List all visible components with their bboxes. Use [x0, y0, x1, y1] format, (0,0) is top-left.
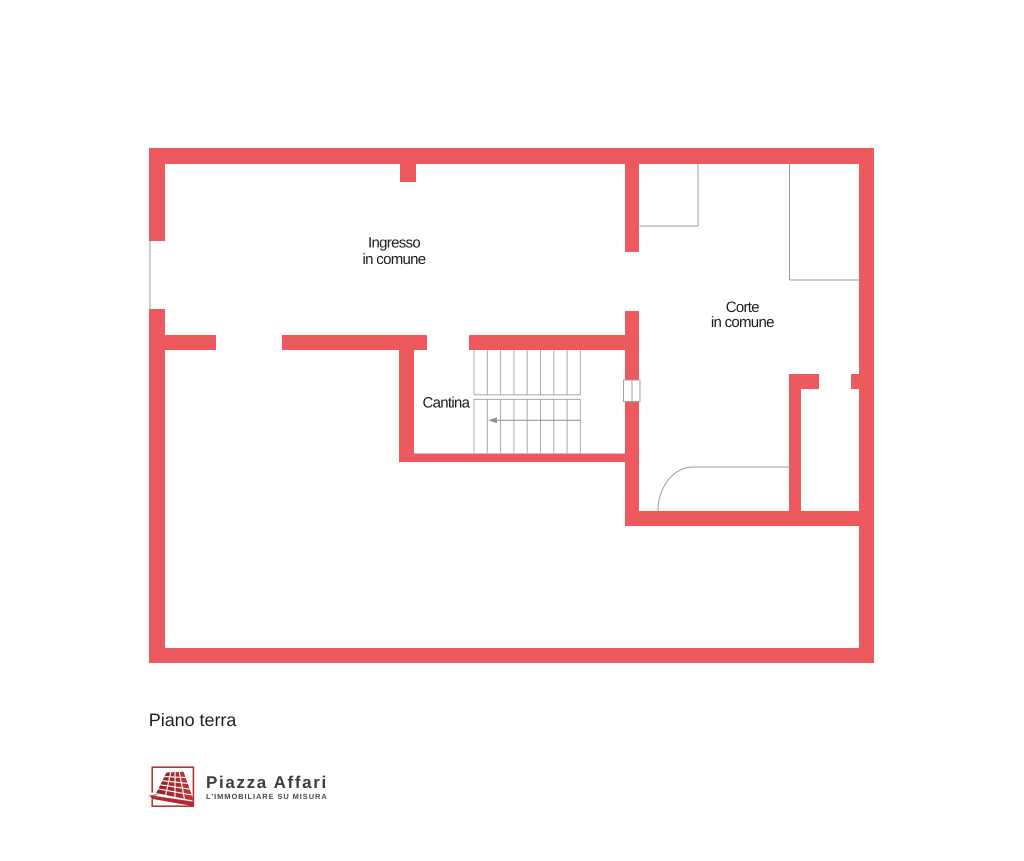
svg-text:in comune: in comune	[711, 314, 774, 331]
svg-text:L'IMMOBILIARE SU MISURA: L'IMMOBILIARE SU MISURA	[206, 792, 328, 801]
svg-text:Piazza Affari: Piazza Affari	[206, 773, 328, 792]
svg-text:Piano terra: Piano terra	[149, 710, 238, 730]
svg-text:in comune: in comune	[363, 251, 426, 268]
svg-text:Ingresso: Ingresso	[368, 235, 420, 252]
svg-text:Cantina: Cantina	[423, 395, 471, 412]
